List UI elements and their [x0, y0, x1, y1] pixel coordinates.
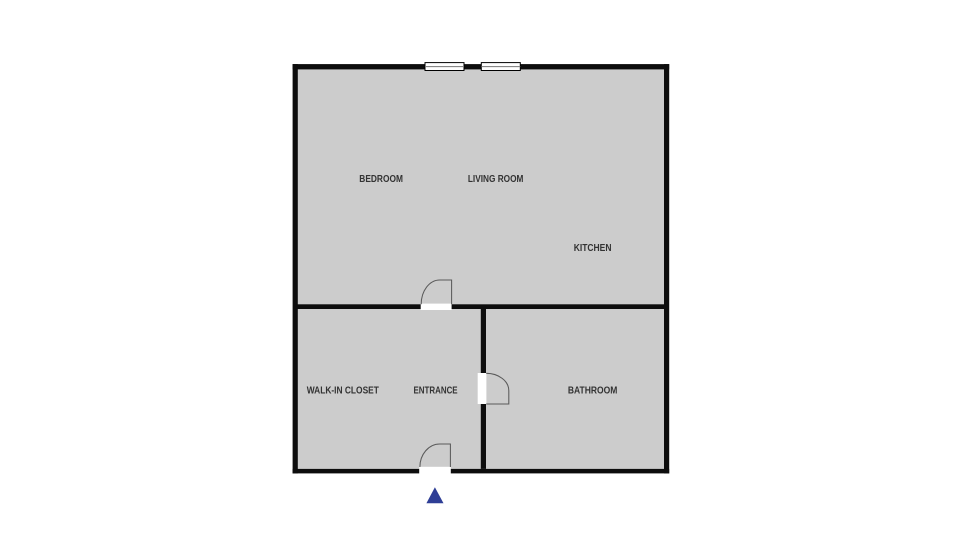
- svg-text:LIVING ROOM: LIVING ROOM: [468, 174, 524, 185]
- svg-text:KITCHEN: KITCHEN: [574, 243, 612, 254]
- svg-text:BEDROOM: BEDROOM: [359, 174, 403, 185]
- svg-text:ENTRANCE: ENTRANCE: [414, 386, 459, 397]
- svg-text:BATHROOM: BATHROOM: [568, 386, 618, 397]
- svg-text:WALK-IN CLOSET: WALK-IN CLOSET: [307, 386, 379, 397]
